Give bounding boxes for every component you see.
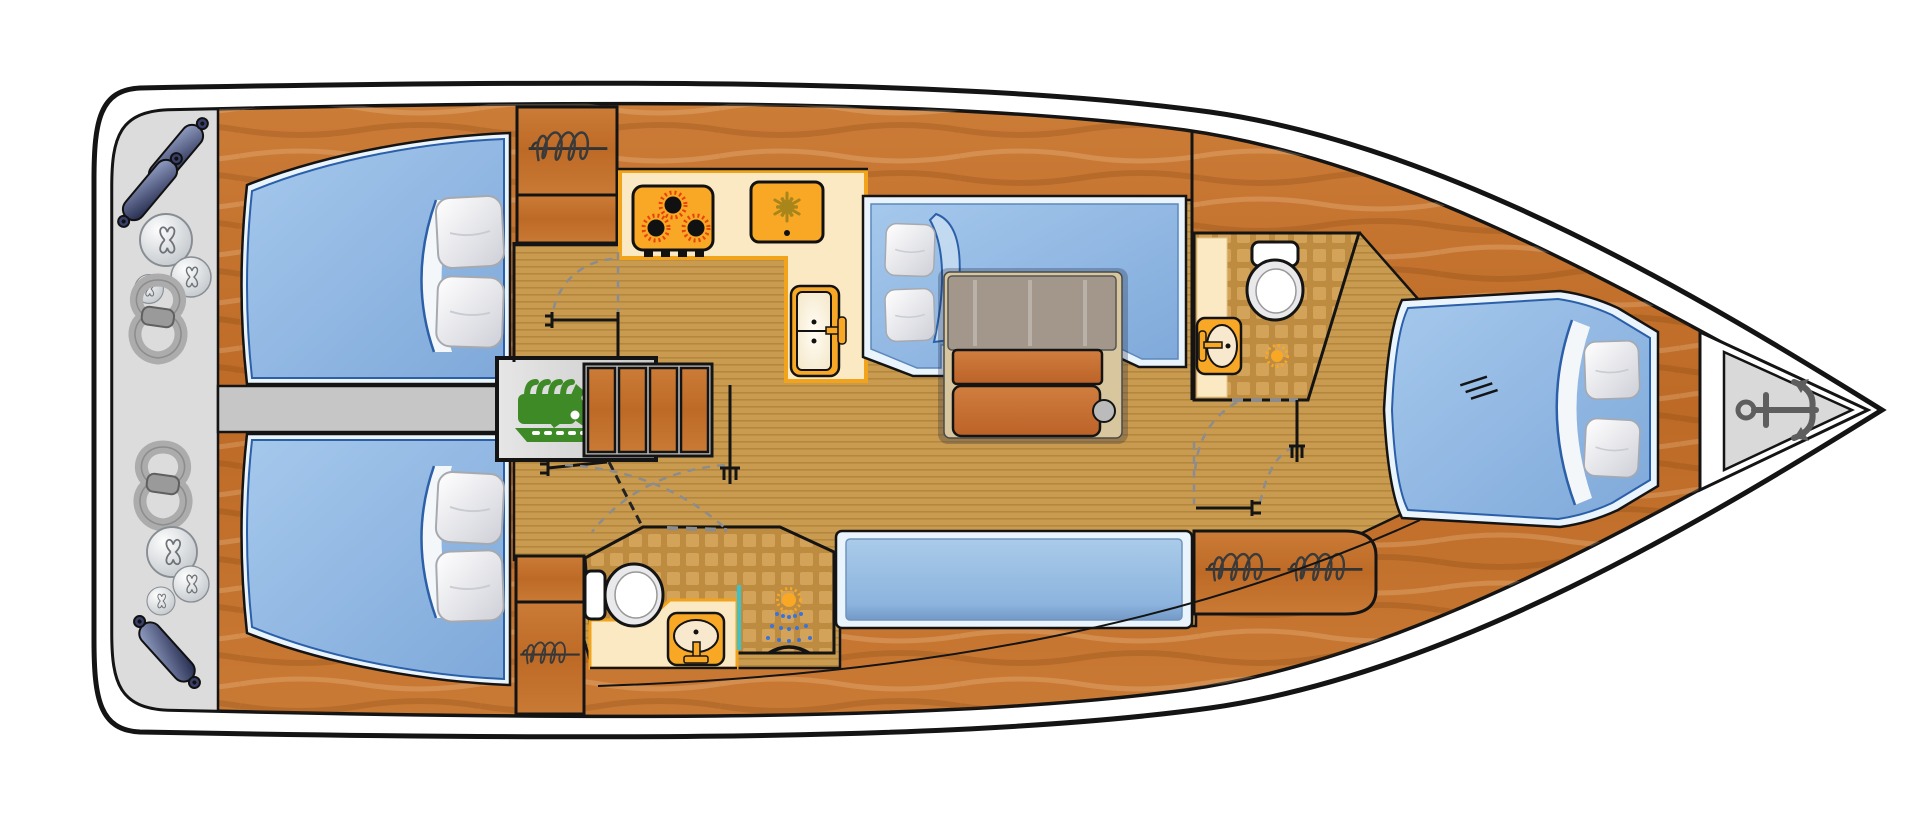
pillow-icon <box>435 471 505 544</box>
refrigerator <box>751 182 823 242</box>
washbasin <box>1197 318 1241 374</box>
aft-head <box>585 527 834 668</box>
table-leaf-mid <box>953 350 1102 384</box>
pillow-icon <box>1583 418 1640 478</box>
fender-ball-icon <box>173 566 209 602</box>
hanging-locker-forward-port <box>517 107 617 243</box>
forward-cabin <box>1384 291 1658 527</box>
pillow-icon <box>436 550 504 622</box>
yacht-floor-plan <box>0 0 1920 822</box>
fridge-latch <box>784 230 790 236</box>
hanging-locker-starboard-double <box>1194 531 1376 614</box>
locker-shelf <box>516 556 584 602</box>
hanging-locker-aft-port <box>516 556 584 714</box>
pillow-icon <box>1584 340 1640 399</box>
pillow-icon <box>436 276 504 348</box>
stern-platform <box>112 109 218 711</box>
washbasin <box>668 613 724 665</box>
fender-ball-icon <box>147 587 175 615</box>
faucet-handle <box>838 317 846 344</box>
table-leaf-low <box>953 386 1100 436</box>
floor-plan-canvas <box>0 0 1920 822</box>
companionway <box>497 358 712 460</box>
locker-shelf <box>517 195 617 243</box>
pillow-icon <box>885 223 936 276</box>
folding-table <box>938 268 1128 444</box>
step <box>619 368 646 452</box>
step <box>588 368 615 452</box>
table-knob <box>1093 400 1115 422</box>
cabin-divider-wall <box>218 386 499 432</box>
salon-bench <box>836 531 1192 628</box>
galley-sink <box>791 286 846 376</box>
step <box>650 368 677 452</box>
bench-cushion <box>846 539 1182 620</box>
stove <box>633 186 713 257</box>
pillow-icon <box>885 288 936 341</box>
pillow-icon <box>435 195 505 268</box>
companionway-steps <box>584 364 712 456</box>
step <box>681 368 708 452</box>
toilet-icon <box>585 564 663 626</box>
toilet-icon <box>1247 242 1303 320</box>
v-berth-mattress <box>1392 299 1650 519</box>
